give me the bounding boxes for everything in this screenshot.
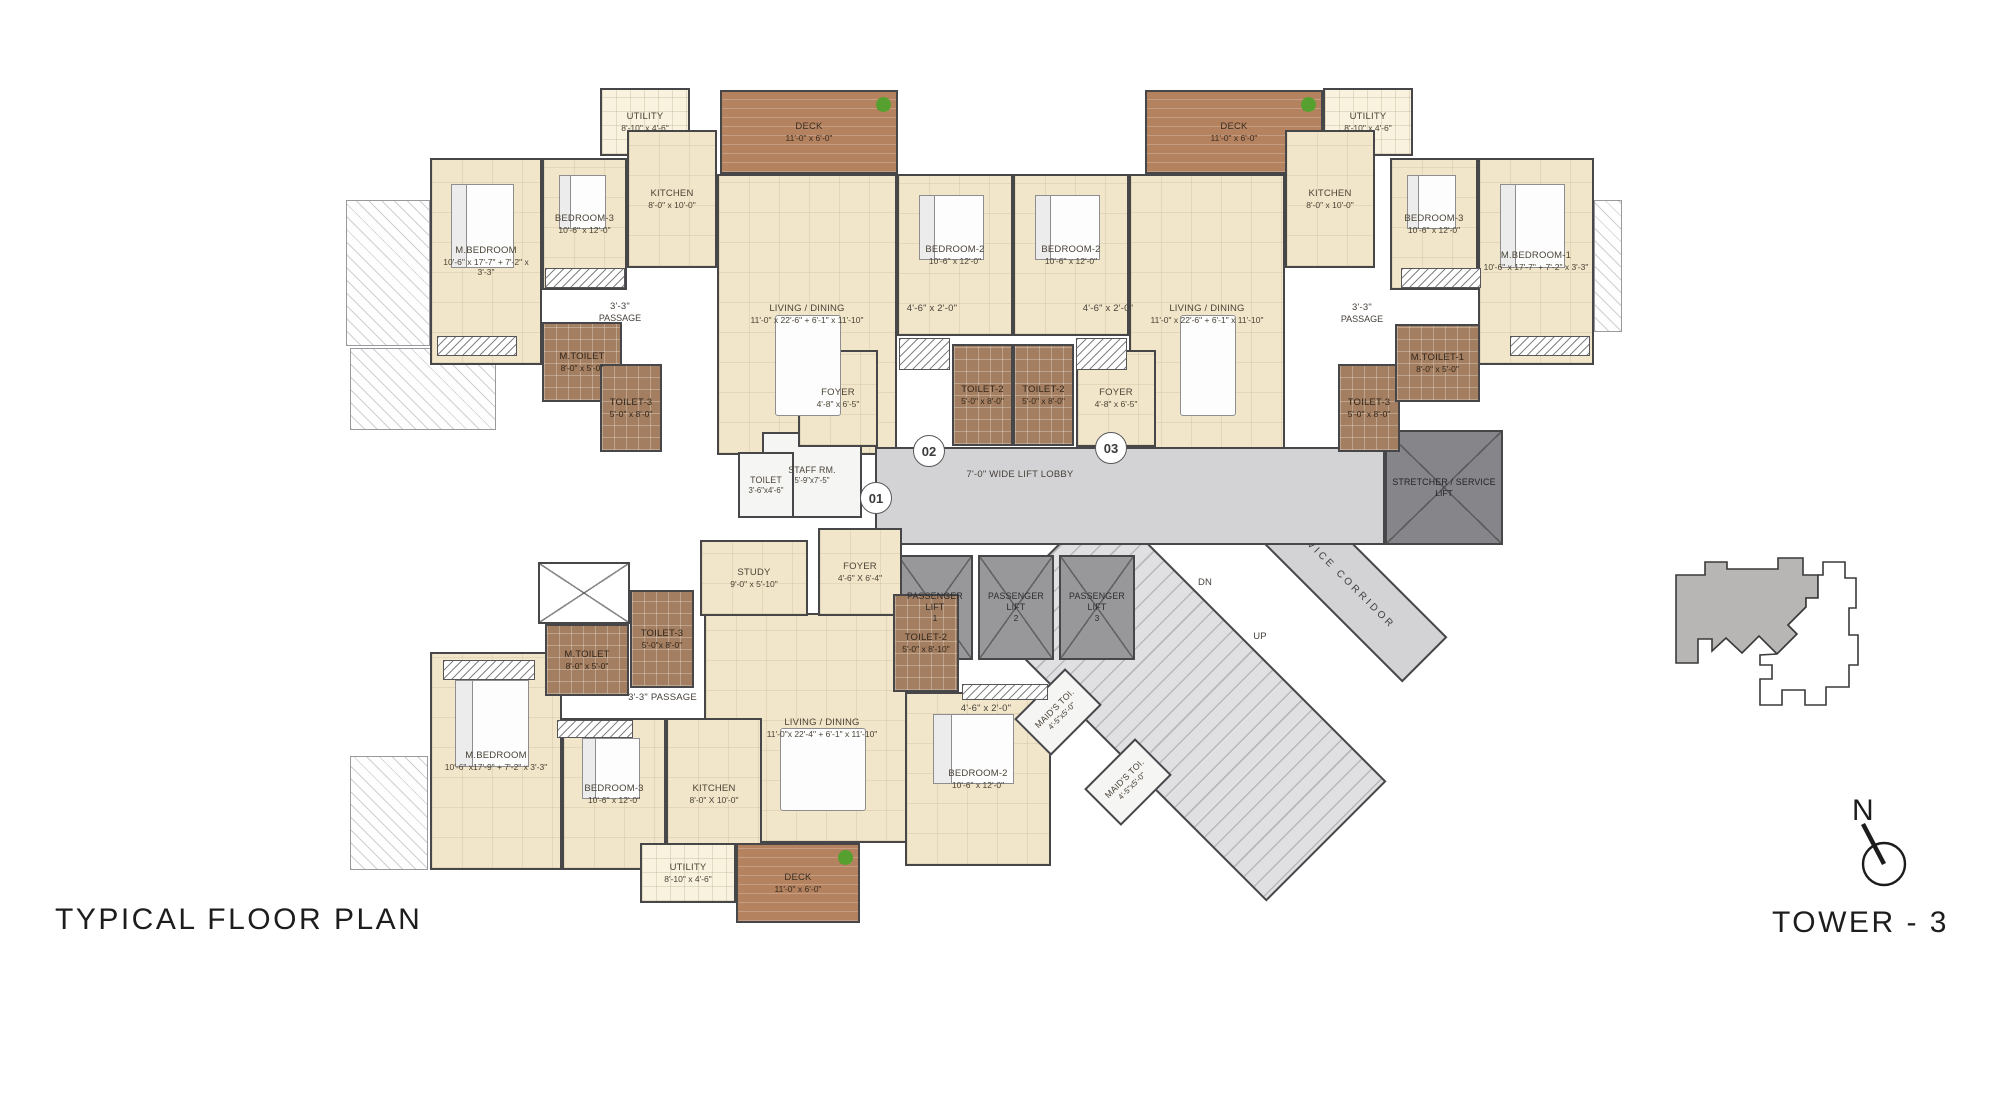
north-arrow-icon: N	[1832, 788, 1932, 898]
kitchen: KITCHEN8'-0" x 10'-0"	[627, 130, 717, 268]
passage-label: 3'-3"PASSAGE	[1322, 296, 1402, 330]
passenger-lift-3: PASSENGER LIFT3	[1059, 555, 1135, 660]
balcony-ledge	[350, 756, 428, 870]
unit-marker-03: 03	[1095, 432, 1127, 464]
passage-label: 3'-3" PASSAGE	[615, 690, 710, 706]
wardrobe	[443, 660, 535, 680]
toilet-2: TOILET-25'-0" x 8'-0"	[1013, 344, 1074, 446]
toilet-3: TOILET-35'-0" x 8'-0"	[600, 364, 662, 452]
m-bedroom-1: M.BEDROOM-110'-6" x 17'-7" + 7'-2" x 3'-…	[1478, 158, 1594, 365]
passage-label: 3'-3"PASSAGE	[580, 295, 660, 329]
m-bedroom: M.BEDROOM10'-6" x17'-9" + 7'-2" x 3'-3"	[430, 652, 562, 870]
toilet: TOILET3'-6"x4'-6"	[738, 452, 794, 518]
toilet-2: TOILET-25'-0" x 8'-0"	[952, 344, 1013, 446]
plan-title: TYPICAL FLOOR PLAN	[55, 903, 422, 937]
table-furniture	[780, 728, 866, 811]
toilet-3: TOILET-35'-0" x 8'-0"	[1338, 364, 1400, 452]
north-label: N	[1852, 794, 1874, 827]
passenger-lift-2: PASSENGER LIFT2	[978, 555, 1054, 660]
table-furniture	[1180, 315, 1237, 417]
wardrobe	[1510, 336, 1590, 356]
wardrobe	[962, 684, 1048, 700]
utility: UTILITY8'-10" x 4'-6"	[640, 843, 736, 903]
floor-plan-canvas: TYPICAL FLOOR PLAN TOWER - 3 N UTILITY8'…	[0, 0, 2000, 1111]
kitchen: KITCHEN8'-0" x 10'-0"	[1285, 130, 1375, 268]
deck: DECK11'-0" x 6'-0"	[720, 90, 898, 174]
foyer: FOYER4'-6" X 6'-4"	[818, 528, 902, 616]
m-toilet: M.TOILET8'-0" x 5'-0"	[545, 624, 629, 696]
stairs-dn-label: DN	[1190, 576, 1220, 590]
m-bedroom: M.BEDROOM10'-6" x 17'-7" + 7'-2" x 3'-3"	[430, 158, 542, 365]
lift-lobby-label: 7'-0" WIDE LIFT LOBBY	[930, 466, 1110, 484]
wardrobe	[1076, 338, 1127, 370]
unit-marker-01: 01	[860, 482, 892, 514]
wardrobe	[437, 336, 517, 356]
balcony-ledge	[346, 200, 430, 346]
lift-lobby	[875, 447, 1385, 545]
wardrobe	[557, 720, 633, 738]
wardrobe	[545, 268, 625, 288]
wardrobe	[899, 338, 950, 370]
study: STUDY9'-0" x 5'-10"	[700, 540, 808, 616]
tower-title: TOWER - 3	[1772, 906, 1949, 940]
stretcher-service-lift: STRETCHER / SERVICELIFT	[1385, 430, 1503, 545]
wardrobe	[1401, 268, 1481, 288]
wardrobe-dim-label: 4'-6" x 2'-0"	[1053, 302, 1163, 316]
balcony-ledge	[1594, 200, 1622, 332]
unit-marker-02: 02	[913, 435, 945, 467]
duct-shaft	[538, 562, 630, 624]
wardrobe-dim-label: 4'-6" x 2'-0"	[877, 302, 987, 316]
toilet-3: TOILET-35'-0"x 8'-0"	[630, 590, 694, 688]
m-toilet-1: M.TOILET-18'-0" x 5'-0"	[1395, 324, 1480, 402]
stairs-up-label: UP	[1245, 630, 1275, 644]
deck: DECK11'-0" x 6'-0"	[736, 843, 860, 923]
